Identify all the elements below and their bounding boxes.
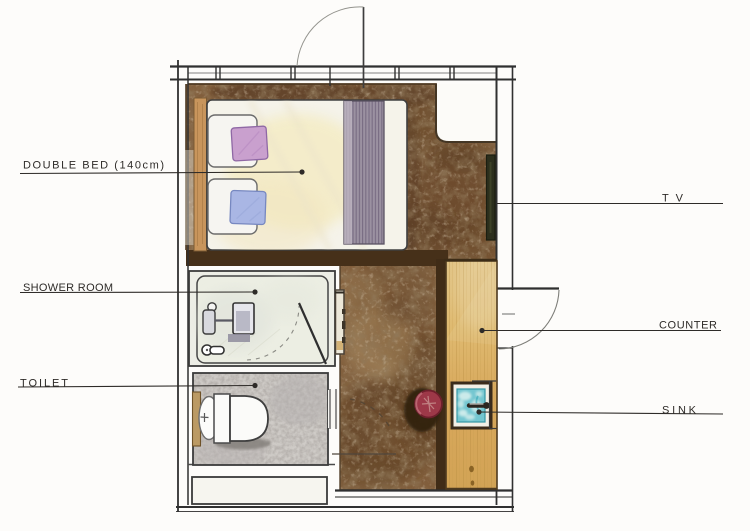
svg-text:COUNTER: COUNTER (659, 320, 717, 332)
svg-text:DOUBLE BED (140cm): DOUBLE BED (140cm) (23, 160, 164, 172)
svg-text:SINK: SINK (662, 405, 697, 417)
